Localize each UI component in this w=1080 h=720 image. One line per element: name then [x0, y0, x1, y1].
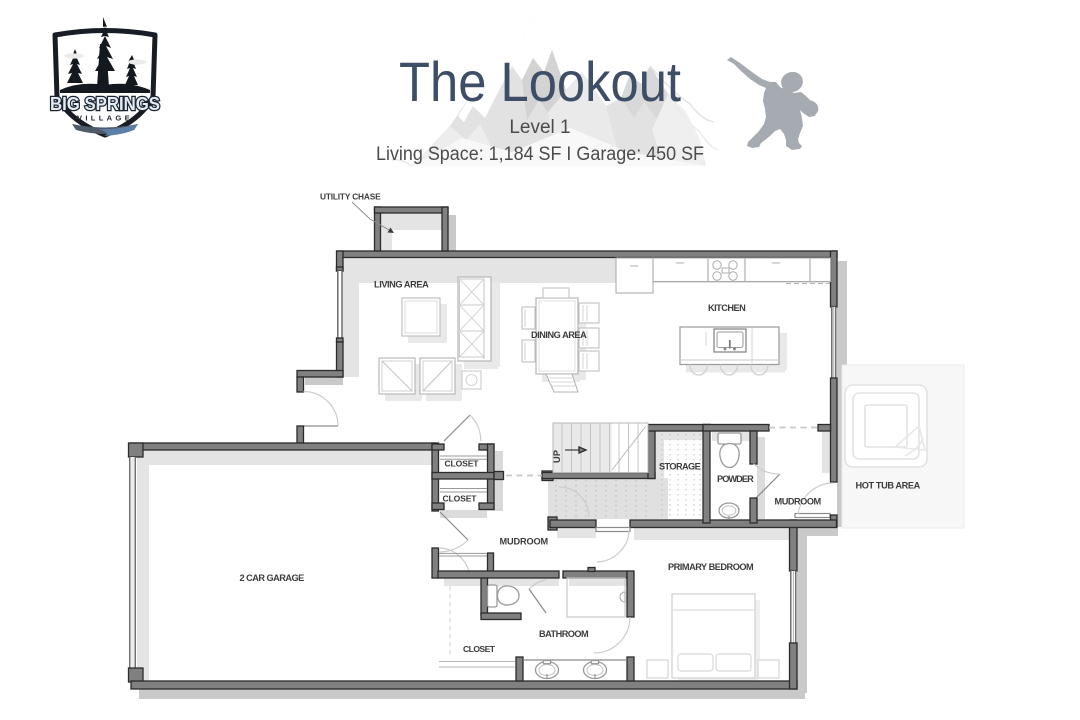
svg-text:BIG SPRINGS: BIG SPRINGS — [50, 94, 160, 114]
svg-text:KITCHEN: KITCHEN — [708, 303, 746, 313]
svg-text:DINING AREA: DINING AREA — [531, 330, 587, 340]
svg-text:The Lookout: The Lookout — [399, 50, 681, 113]
svg-text:CLOSET: CLOSET — [445, 459, 480, 469]
svg-text:HOT TUB AREA: HOT TUB AREA — [856, 481, 921, 491]
svg-text:POWDER: POWDER — [717, 474, 754, 484]
svg-text:BATHROOM: BATHROOM — [539, 629, 589, 639]
svg-text:PRIMARY BEDROOM: PRIMARY BEDROOM — [668, 562, 754, 572]
svg-text:Level 1: Level 1 — [509, 117, 570, 138]
svg-text:2 CAR GARAGE: 2 CAR GARAGE — [240, 573, 305, 583]
svg-text:CLOSET: CLOSET — [443, 494, 478, 504]
svg-text:Living Space: 1,184 SF I Garag: Living Space: 1,184 SF I Garage: 450 SF — [376, 144, 704, 165]
svg-text:LIVING AREA: LIVING AREA — [374, 280, 429, 290]
svg-text:MUDROOM: MUDROOM — [775, 497, 822, 507]
svg-text:MUDROOM: MUDROOM — [500, 537, 549, 547]
svg-text:STORAGE: STORAGE — [659, 462, 701, 472]
svg-text:UP: UP — [552, 450, 562, 463]
svg-text:UTILITY CHASE: UTILITY CHASE — [320, 192, 381, 202]
svg-text:CLOSET: CLOSET — [463, 644, 496, 654]
svg-text:VILLAGE: VILLAGE — [77, 116, 133, 123]
